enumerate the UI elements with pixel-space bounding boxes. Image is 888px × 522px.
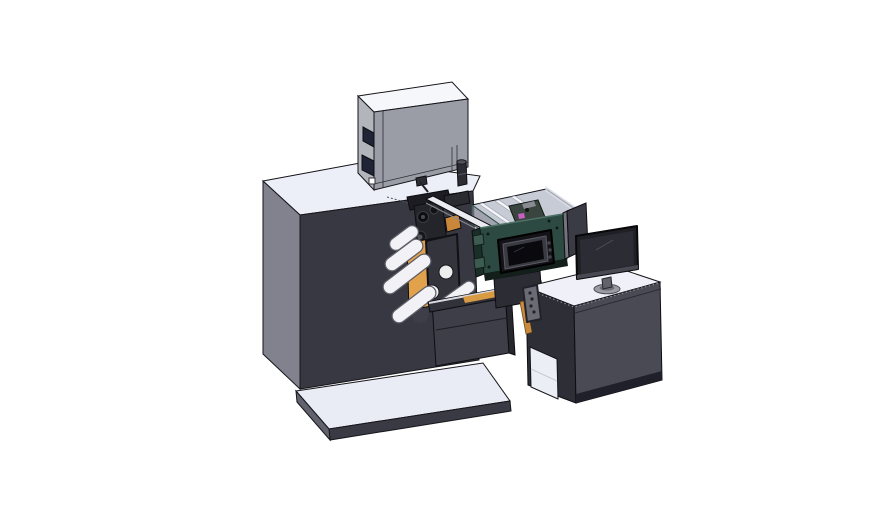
bracket-hole [528,291,531,294]
cad-render-canvas [0,0,888,522]
bolt-tab-lower [474,257,485,269]
guide-bracket [523,285,541,322]
box-screw [488,266,491,269]
top-knob-cylinder [457,160,467,186]
monitor-stand-neck [602,277,612,289]
hmi-button [547,241,550,244]
carriage-hub [525,208,529,212]
hmi-button [548,248,551,251]
bracket-hole [530,297,533,300]
box-screw [487,233,490,236]
knob-cap [457,160,466,164]
gear-large-hub [421,215,425,219]
gear-lower-hub [418,235,423,240]
hmi-button [548,255,551,258]
bracket-hole [532,310,535,313]
bracket-hole [529,304,532,307]
machine-render [0,0,888,522]
cabinet-left-face [263,181,300,389]
box-screw [548,220,551,223]
cover-plate-hole-upper [439,265,453,279]
box-screw [556,227,559,230]
carriage-pink-part [518,213,525,219]
bolt-tab-upper [473,234,484,246]
operator-desk [526,266,662,403]
enclosure-label-plate [369,178,375,184]
